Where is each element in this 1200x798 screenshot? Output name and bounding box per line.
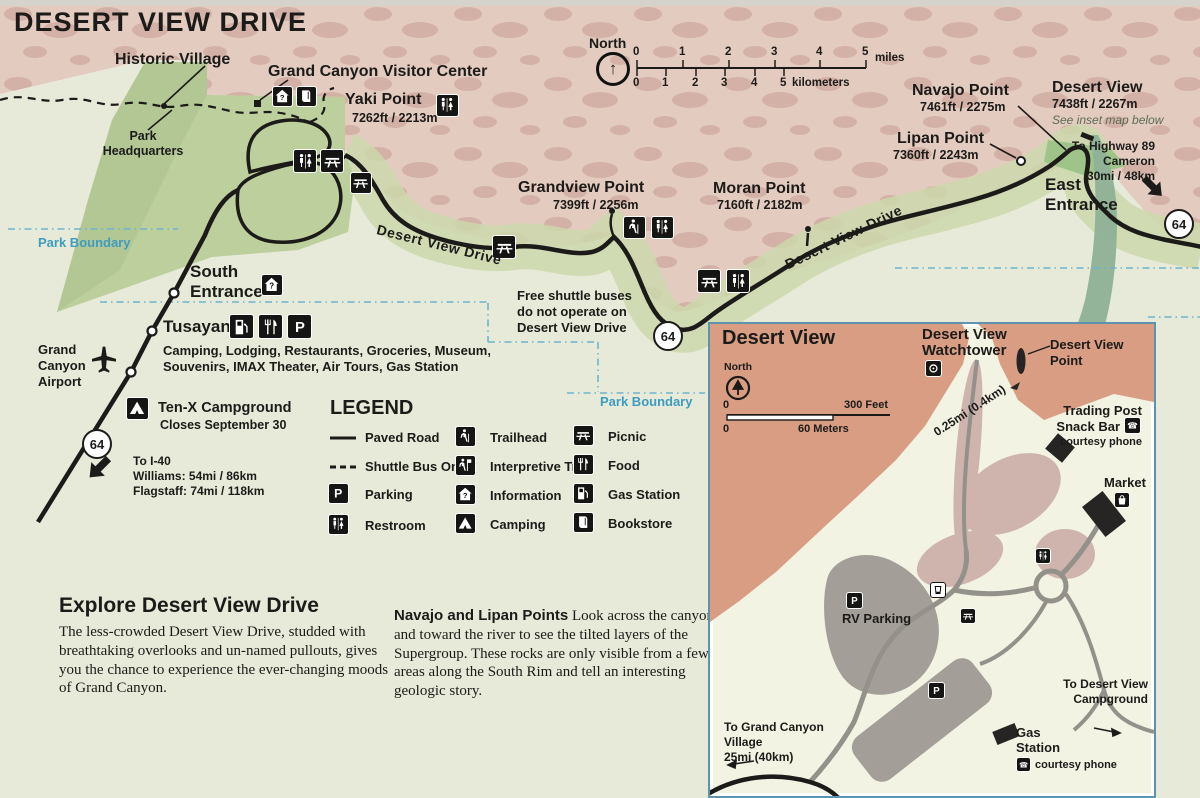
- label-visitor-center: Grand Canyon Visitor Center: [268, 64, 487, 81]
- paved-road-sample: [328, 434, 358, 442]
- explore-heading: Explore Desert View Drive: [59, 595, 319, 617]
- parking-icon: [846, 592, 863, 609]
- information-icon: [455, 484, 476, 505]
- inset-to-campground-1: To Desert View: [1050, 678, 1148, 691]
- north-arrow: ↑: [596, 52, 630, 86]
- label-navajo-elev: 7461ft / 2275m: [920, 101, 1005, 114]
- inset-trading-post-2: Snack Bar: [1004, 420, 1120, 434]
- legend-label: Picnic: [608, 430, 646, 444]
- label-tenx-note: Closes September 30: [160, 419, 286, 432]
- information-icon: [272, 86, 293, 107]
- restroom-icon: [328, 514, 349, 535]
- inset-courtesy-phone: courtesy phone: [1042, 437, 1142, 449]
- label-desert-view: Desert View: [1052, 80, 1142, 97]
- restroom-icon: [651, 216, 674, 239]
- inset-highway: [710, 777, 842, 796]
- inset-watchtower-label-1: Desert View: [922, 327, 1007, 343]
- park-boundary-label: Park Boundary: [600, 395, 692, 409]
- north-label: North: [589, 36, 626, 51]
- desert-view-drive-map: DESERT VIEW DRIVE Historic Village Grand…: [0, 0, 1200, 798]
- inset-dv-point-2: Point: [1050, 354, 1083, 368]
- legend-label: Parking: [365, 488, 413, 502]
- inset-gas-courtesy-phone: courtesy phone: [1035, 760, 1117, 772]
- inset-north-label: North: [724, 362, 752, 373]
- parking-icon: [287, 314, 312, 339]
- airplane-icon: [88, 344, 120, 376]
- inset-title: Desert View: [722, 328, 835, 349]
- legend-label: Gas Station: [608, 488, 680, 502]
- map-title: DESERT VIEW DRIVE: [14, 8, 307, 36]
- explore-body: The less-crowded Desert View Drive, stud…: [59, 623, 389, 698]
- restroom-icon: [436, 94, 459, 117]
- inset-to-village-1: To Grand Canyon: [724, 721, 824, 734]
- inset-to-village-3: 25mi (40km): [724, 751, 793, 764]
- legend-label: Food: [608, 459, 640, 473]
- scale-bar: 0 1 2 3 4 5 miles 0 1 2 3 4 5 kilometers: [628, 46, 928, 92]
- label-navajo-point: Navajo Point: [912, 83, 1009, 100]
- drinking-water-icon: [930, 582, 946, 598]
- inset-scale-meters: 60 Meters: [798, 424, 849, 436]
- inset-gas-1: Gas: [1016, 726, 1041, 740]
- navajo-lipan-paragraph: Navajo and Lipan Points Look across the …: [394, 607, 716, 701]
- legend-label: Trailhead: [490, 431, 547, 445]
- label-i40-1: To I-40: [133, 455, 171, 468]
- inset-scale-0m: 0: [723, 424, 729, 436]
- interpretive-trail-icon: [455, 455, 476, 476]
- inset-scale-feet: 300 Feet: [844, 400, 888, 412]
- food-icon: [258, 314, 283, 339]
- label-hwy89-1: To Highway 89: [1060, 140, 1155, 153]
- watchtower-building: [1017, 348, 1026, 374]
- courtesy-phone-icon: [1124, 417, 1141, 434]
- legend-label: Camping: [490, 518, 546, 532]
- legend-label: Bookstore: [608, 517, 672, 531]
- camping-icon: [455, 513, 476, 534]
- legend-title: LEGEND: [330, 398, 413, 419]
- label-east-entrance-1: East: [1045, 176, 1081, 194]
- legend-label: Information: [490, 489, 562, 503]
- label-south-entrance-2: Entrance: [190, 283, 263, 301]
- bookstore-icon: [296, 86, 317, 107]
- label-grandview-elev: 7399ft / 2256m: [553, 199, 638, 212]
- inset-trading-post-1: Trading Post: [1042, 404, 1142, 418]
- courtesy-phone-icon: [1016, 757, 1031, 772]
- bookstore-icon: [573, 512, 594, 533]
- route-64-shield: 64: [653, 321, 683, 351]
- legend-label: Restroom: [365, 519, 426, 533]
- inset-parking-lots: [824, 555, 998, 787]
- picnic-icon: [697, 269, 721, 293]
- information-icon: [261, 274, 283, 296]
- label-south-entrance-1: South: [190, 263, 238, 281]
- park-boundary-label: Park Boundary: [38, 236, 130, 250]
- restroom-icon: [1035, 548, 1051, 564]
- label-see-inset: See inset map below: [1052, 114, 1163, 127]
- label-i40-2: Williams: 54mi / 86km: [133, 470, 257, 483]
- inset-to-campground-2: Campground: [1050, 693, 1148, 706]
- inset-scale-0ft: 0: [723, 400, 729, 412]
- label-airport-3: Airport: [38, 375, 81, 389]
- inset-gas-2: Station: [1016, 741, 1060, 755]
- label-i40-3: Flagstaff: 74mi / 118km: [133, 485, 264, 498]
- label-park-hq-2: Headquarters: [100, 145, 186, 158]
- picnic-icon: [960, 608, 976, 624]
- inset-to-village-2: Village: [724, 736, 762, 749]
- route-64-shield: 64: [1164, 209, 1194, 239]
- camping-icon: [126, 397, 149, 420]
- label-historic-village: Historic Village: [115, 52, 230, 69]
- navajo-lipan-lead: Navajo and Lipan Points: [394, 607, 568, 624]
- map-edge-strip: [0, 0, 1200, 6]
- market-icon: [1114, 492, 1130, 508]
- shuttle-note-3: Desert View Drive: [517, 321, 627, 335]
- label-airport-2: Canyon: [38, 359, 86, 373]
- label-yaki-elev: 7262ft / 2213m: [352, 112, 437, 125]
- label-moran-point: Moran Point: [713, 181, 805, 198]
- gas-station-icon: [573, 483, 594, 504]
- tusayan-desc-1: Camping, Lodging, Restaurants, Groceries…: [163, 344, 491, 358]
- label-lipan-elev: 7360ft / 2243m: [893, 149, 978, 162]
- label-desert-view-elev: 7438ft / 2267m: [1052, 98, 1137, 111]
- label-lipan-point: Lipan Point: [897, 131, 984, 148]
- restroom-icon: [293, 149, 317, 173]
- gas-station-icon: [229, 314, 254, 339]
- label-airport-1: Grand: [38, 343, 76, 357]
- parking-icon: [328, 483, 349, 504]
- label-hwy89-2: Cameron: [1060, 155, 1155, 168]
- label-tusayan: Tusayan: [163, 318, 231, 336]
- inset-dv-point-1: Desert View: [1050, 338, 1123, 352]
- picnic-icon: [573, 425, 594, 446]
- tusayan-desc-2: Souvenirs, IMAX Theater, Air Tours, Gas …: [163, 360, 458, 374]
- trailhead-icon: [623, 216, 646, 239]
- parking-icon: [928, 682, 945, 699]
- trailhead-icon: [455, 426, 476, 447]
- picnic-icon: [350, 172, 372, 194]
- shuttle-note-1: Free shuttle buses: [517, 289, 632, 303]
- shuttle-note-2: do not operate on: [517, 305, 627, 319]
- label-park-hq-1: Park: [100, 130, 186, 143]
- label-tenx: Ten-X Campground: [158, 401, 291, 416]
- label-grandview-point: Grandview Point: [518, 180, 644, 197]
- label-moran-elev: 7160ft / 2182m: [717, 199, 802, 212]
- inset-market-label: Market: [1104, 476, 1146, 490]
- food-icon: [573, 454, 594, 475]
- label-yaki-point: Yaki Point: [345, 92, 421, 109]
- legend-label: Paved Road: [365, 431, 439, 445]
- inset-watchtower-label-2: Watchtower: [922, 343, 1006, 359]
- restroom-icon: [726, 269, 750, 293]
- shuttle-bus-only-sample: [328, 463, 358, 471]
- desert-view-inset-map: Desert View North 0 300 Feet 0 60 Meters…: [708, 322, 1156, 798]
- lookout-icon: [925, 360, 942, 377]
- picnic-icon: [320, 149, 344, 173]
- label-east-entrance-2: Entrance: [1045, 196, 1118, 214]
- inset-rv-parking-label: RV Parking: [842, 612, 911, 626]
